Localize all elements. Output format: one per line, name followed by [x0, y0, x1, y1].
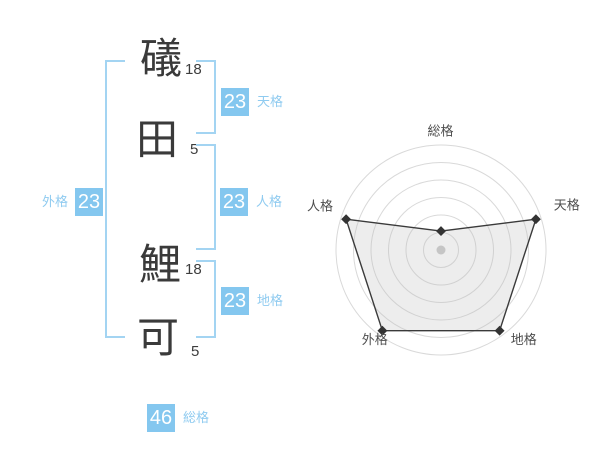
soukaku-label: 総格 — [183, 411, 209, 425]
name-char-3: 鯉 — [139, 244, 181, 286]
jinkaku-value-badge: 23 — [220, 188, 248, 216]
chikaku-bracket — [196, 260, 216, 338]
seimei-handan-panel: 礒 18 田 5 鯉 18 可 5 23 天格 23 人格 23 地格 外格 2… — [0, 0, 600, 470]
gaikaku-value-badge: 23 — [75, 188, 103, 216]
jinkaku-label: 人格 — [256, 195, 282, 209]
radar-axis-label-3: 地格 — [511, 332, 537, 347]
name-char-1: 礒 — [140, 38, 182, 80]
tenkaku-label: 天格 — [257, 95, 283, 109]
radar-axis-label-4: 外格 — [362, 332, 388, 347]
radar-axis-label-2: 天格 — [554, 198, 580, 213]
jinkaku-bracket — [196, 144, 216, 250]
radar-center-dot — [437, 246, 446, 255]
tenkaku-bracket — [196, 60, 216, 134]
soukaku-value-badge: 46 — [147, 404, 175, 432]
name-char-2: 田 — [136, 119, 178, 161]
gaikaku-bracket — [105, 60, 125, 338]
chikaku-value-badge: 23 — [221, 287, 249, 315]
tenkaku-value-badge: 23 — [221, 88, 249, 116]
radar-axis-label-5: 人格 — [307, 199, 333, 214]
radar-chart: 総格天格地格外格人格 — [300, 110, 590, 365]
gaikaku-label: 外格 — [30, 195, 68, 209]
name-char-4-strokes: 5 — [191, 344, 199, 359]
chikaku-label: 地格 — [257, 294, 283, 308]
name-char-4: 可 — [137, 317, 179, 359]
radar-axis-label-1: 総格 — [427, 124, 453, 139]
